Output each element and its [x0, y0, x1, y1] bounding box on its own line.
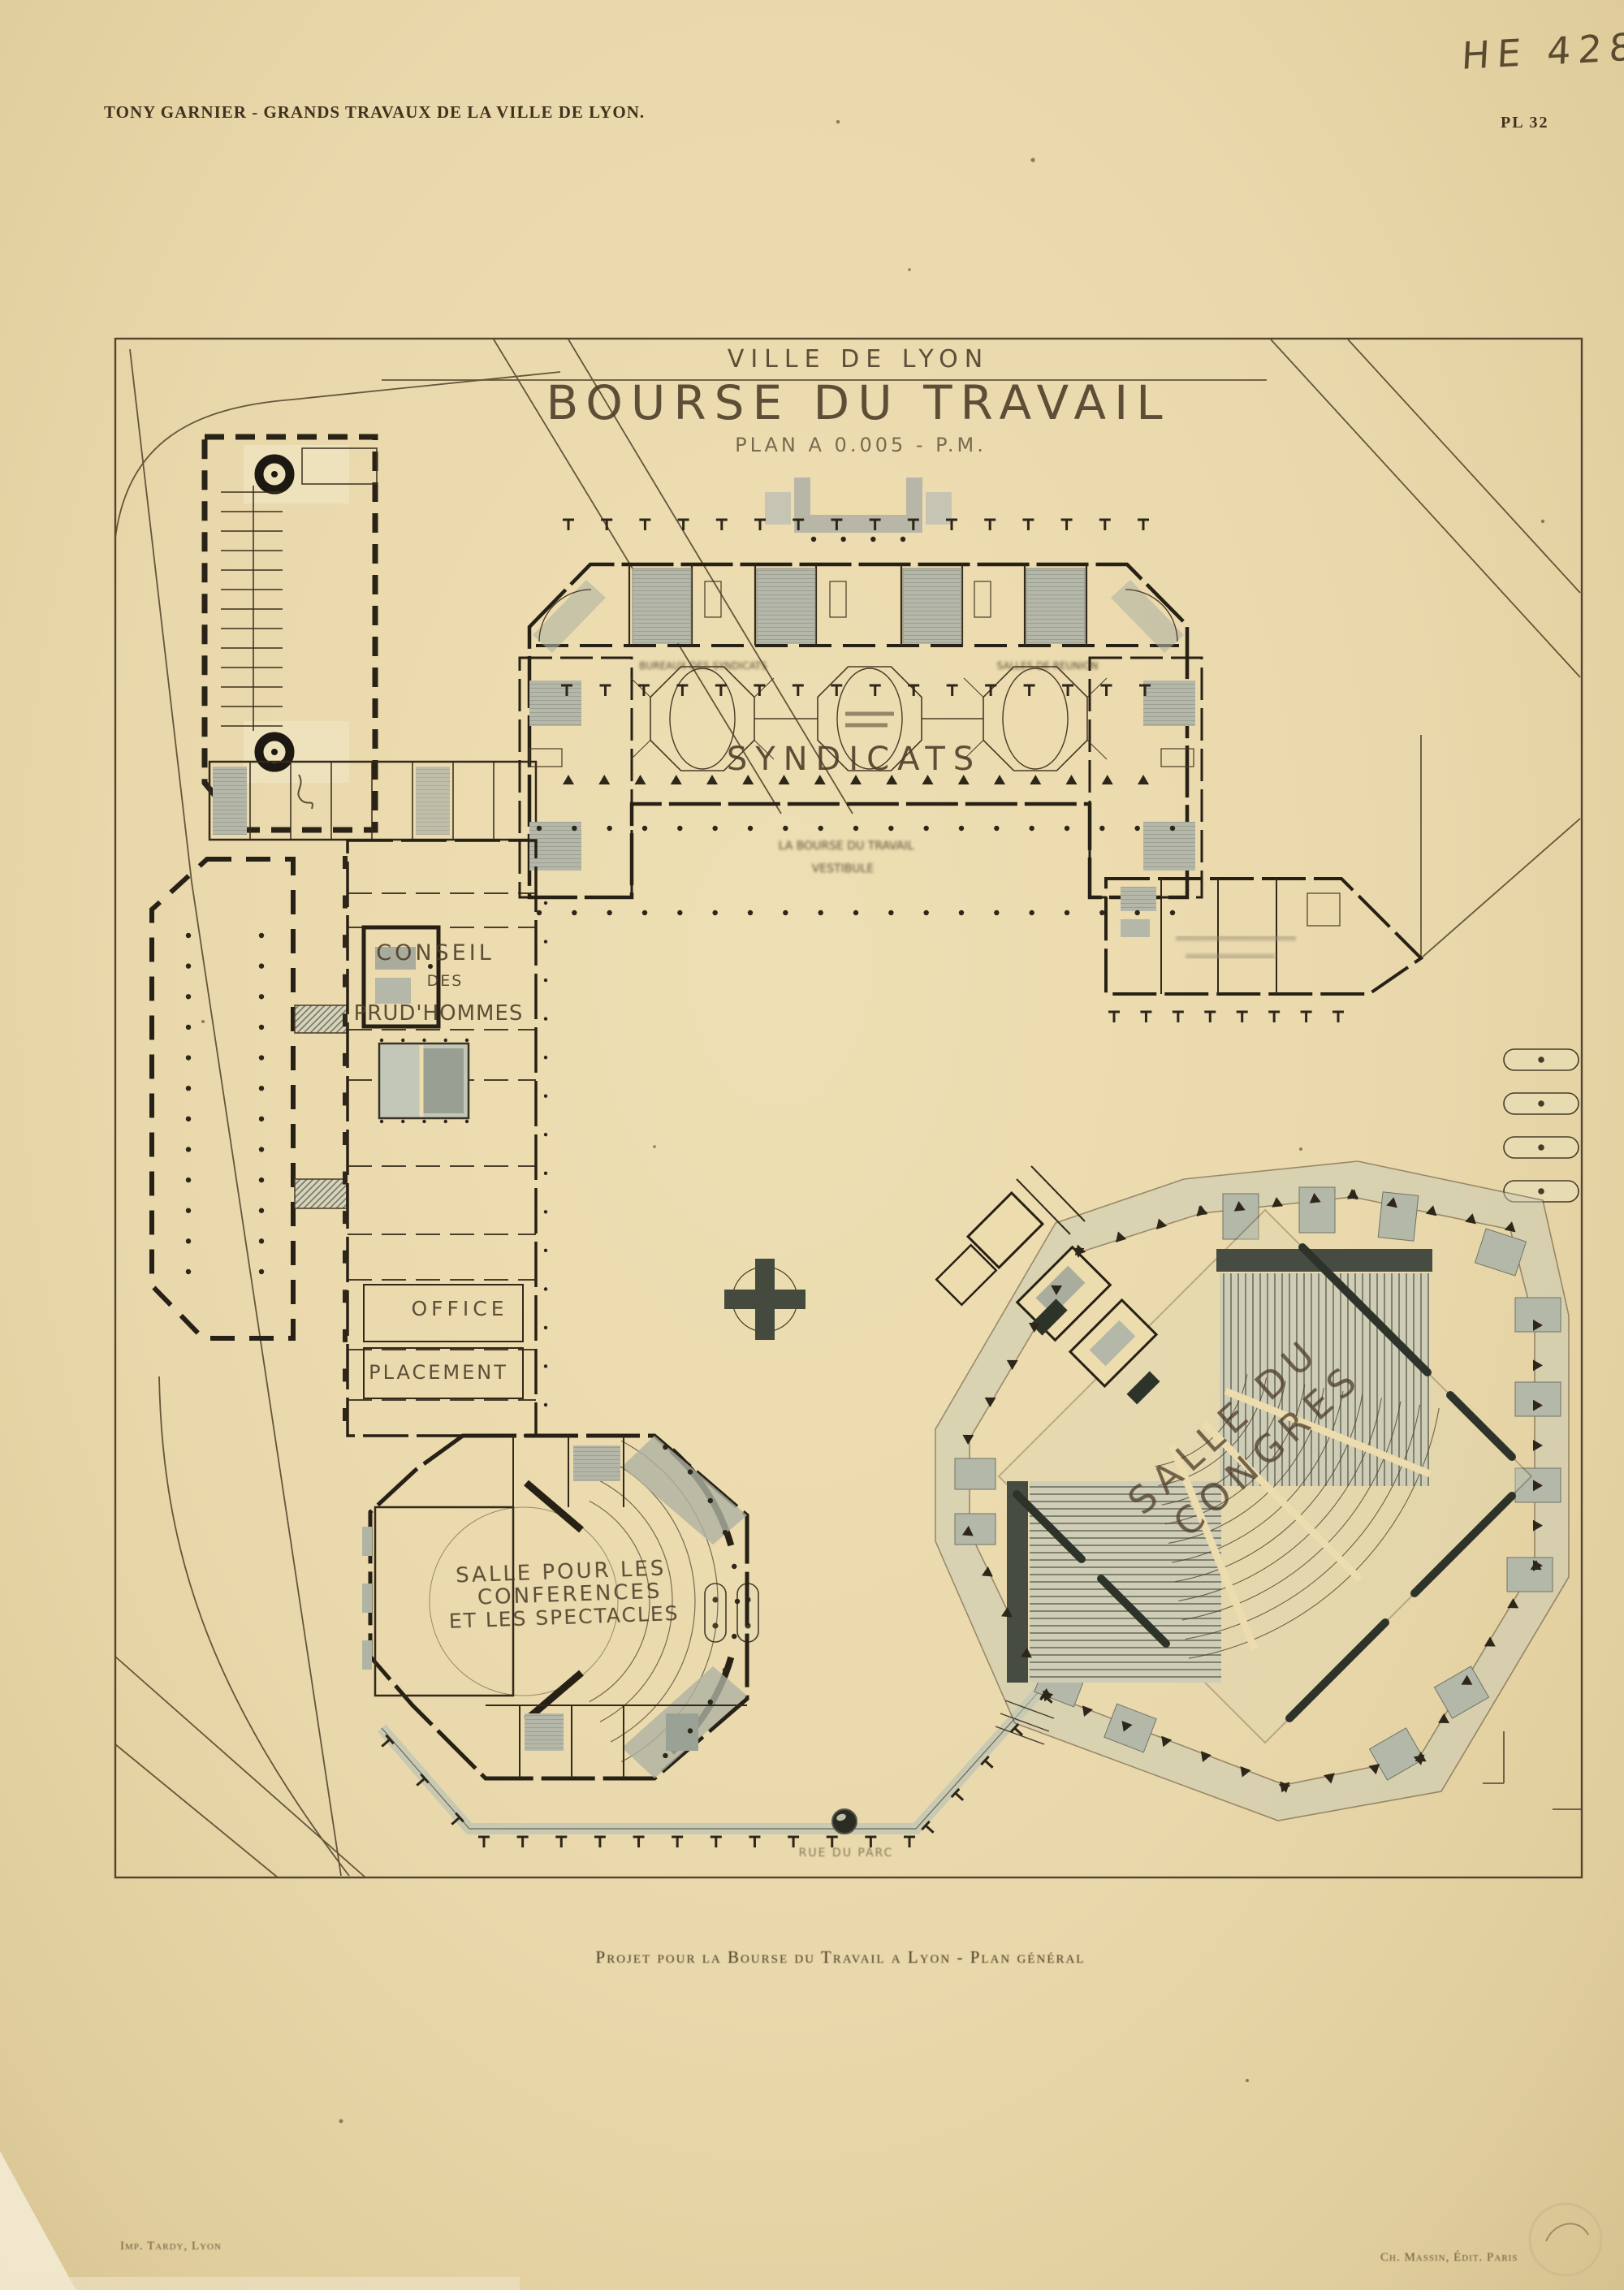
- paper-edge: [0, 2277, 520, 2290]
- colonnade-row: [811, 537, 905, 542]
- east-wing: [1106, 879, 1421, 994]
- label-prudhommes: PRUD'HOMMES: [354, 1001, 524, 1026]
- colonnade-row: [259, 933, 264, 1274]
- entrance-portico: [765, 477, 952, 533]
- colonnade-row: [186, 933, 191, 1274]
- well-feature: [832, 1809, 857, 1834]
- west-bar-rooms: [348, 840, 536, 1436]
- label-syndicats: SYNDICATS: [727, 741, 982, 778]
- courtyard-fountain: [724, 1259, 806, 1340]
- colonnade-row: [380, 1120, 469, 1123]
- colonnade-row: [343, 856, 348, 1421]
- label-conseil-des: DES: [427, 972, 464, 990]
- publisher-credit: Ch. Massin, Édit. Paris: [1380, 2251, 1518, 2265]
- caption-rooms-left: BUREAUX DES SYNDICATS: [639, 660, 767, 672]
- stamp-line-2: VESTIBULE: [812, 862, 875, 875]
- label-street: RUE DU PARC: [799, 1847, 894, 1860]
- scanned-plate: TONY GARNIER - GRANDS TRAVAUX DE LA VILL…: [0, 0, 1624, 2290]
- plan-title-scale: PLAN A 0.005 - P.M.: [735, 434, 987, 456]
- label-conseil: CONSEIL: [376, 940, 495, 966]
- caption-rooms-right: SALLES DE REUNION: [997, 660, 1099, 672]
- colonnade-row: [380, 1039, 469, 1042]
- courtyard-pavilion: [379, 1043, 469, 1118]
- colonnade-row: [1108, 1012, 1344, 1022]
- stamp-line-1: LA BOURSE DU TRAVAIL: [779, 840, 914, 853]
- colonnade-row: [544, 901, 547, 1406]
- label-placement: PLACEMENT: [369, 1361, 508, 1384]
- plate-caption: Projet pour la Bourse du Travail a Lyon …: [434, 1947, 1246, 1968]
- plan-title-main: BOURSE DU TRAVAIL: [546, 375, 1170, 430]
- syndicats-hall: [520, 477, 1202, 897]
- colonnade-row: [537, 910, 1175, 915]
- plan-title-city: VILLE DE LYON: [728, 345, 989, 374]
- blind-stamp: [1530, 2204, 1601, 2275]
- label-office: OFFICE: [411, 1297, 508, 1320]
- plan-drawing: VILLE DE LYON BOURSE DU TRAVAIL PLAN A 0…: [0, 0, 1624, 2290]
- printer-credit: Imp. Tardy, Lyon: [120, 2240, 222, 2253]
